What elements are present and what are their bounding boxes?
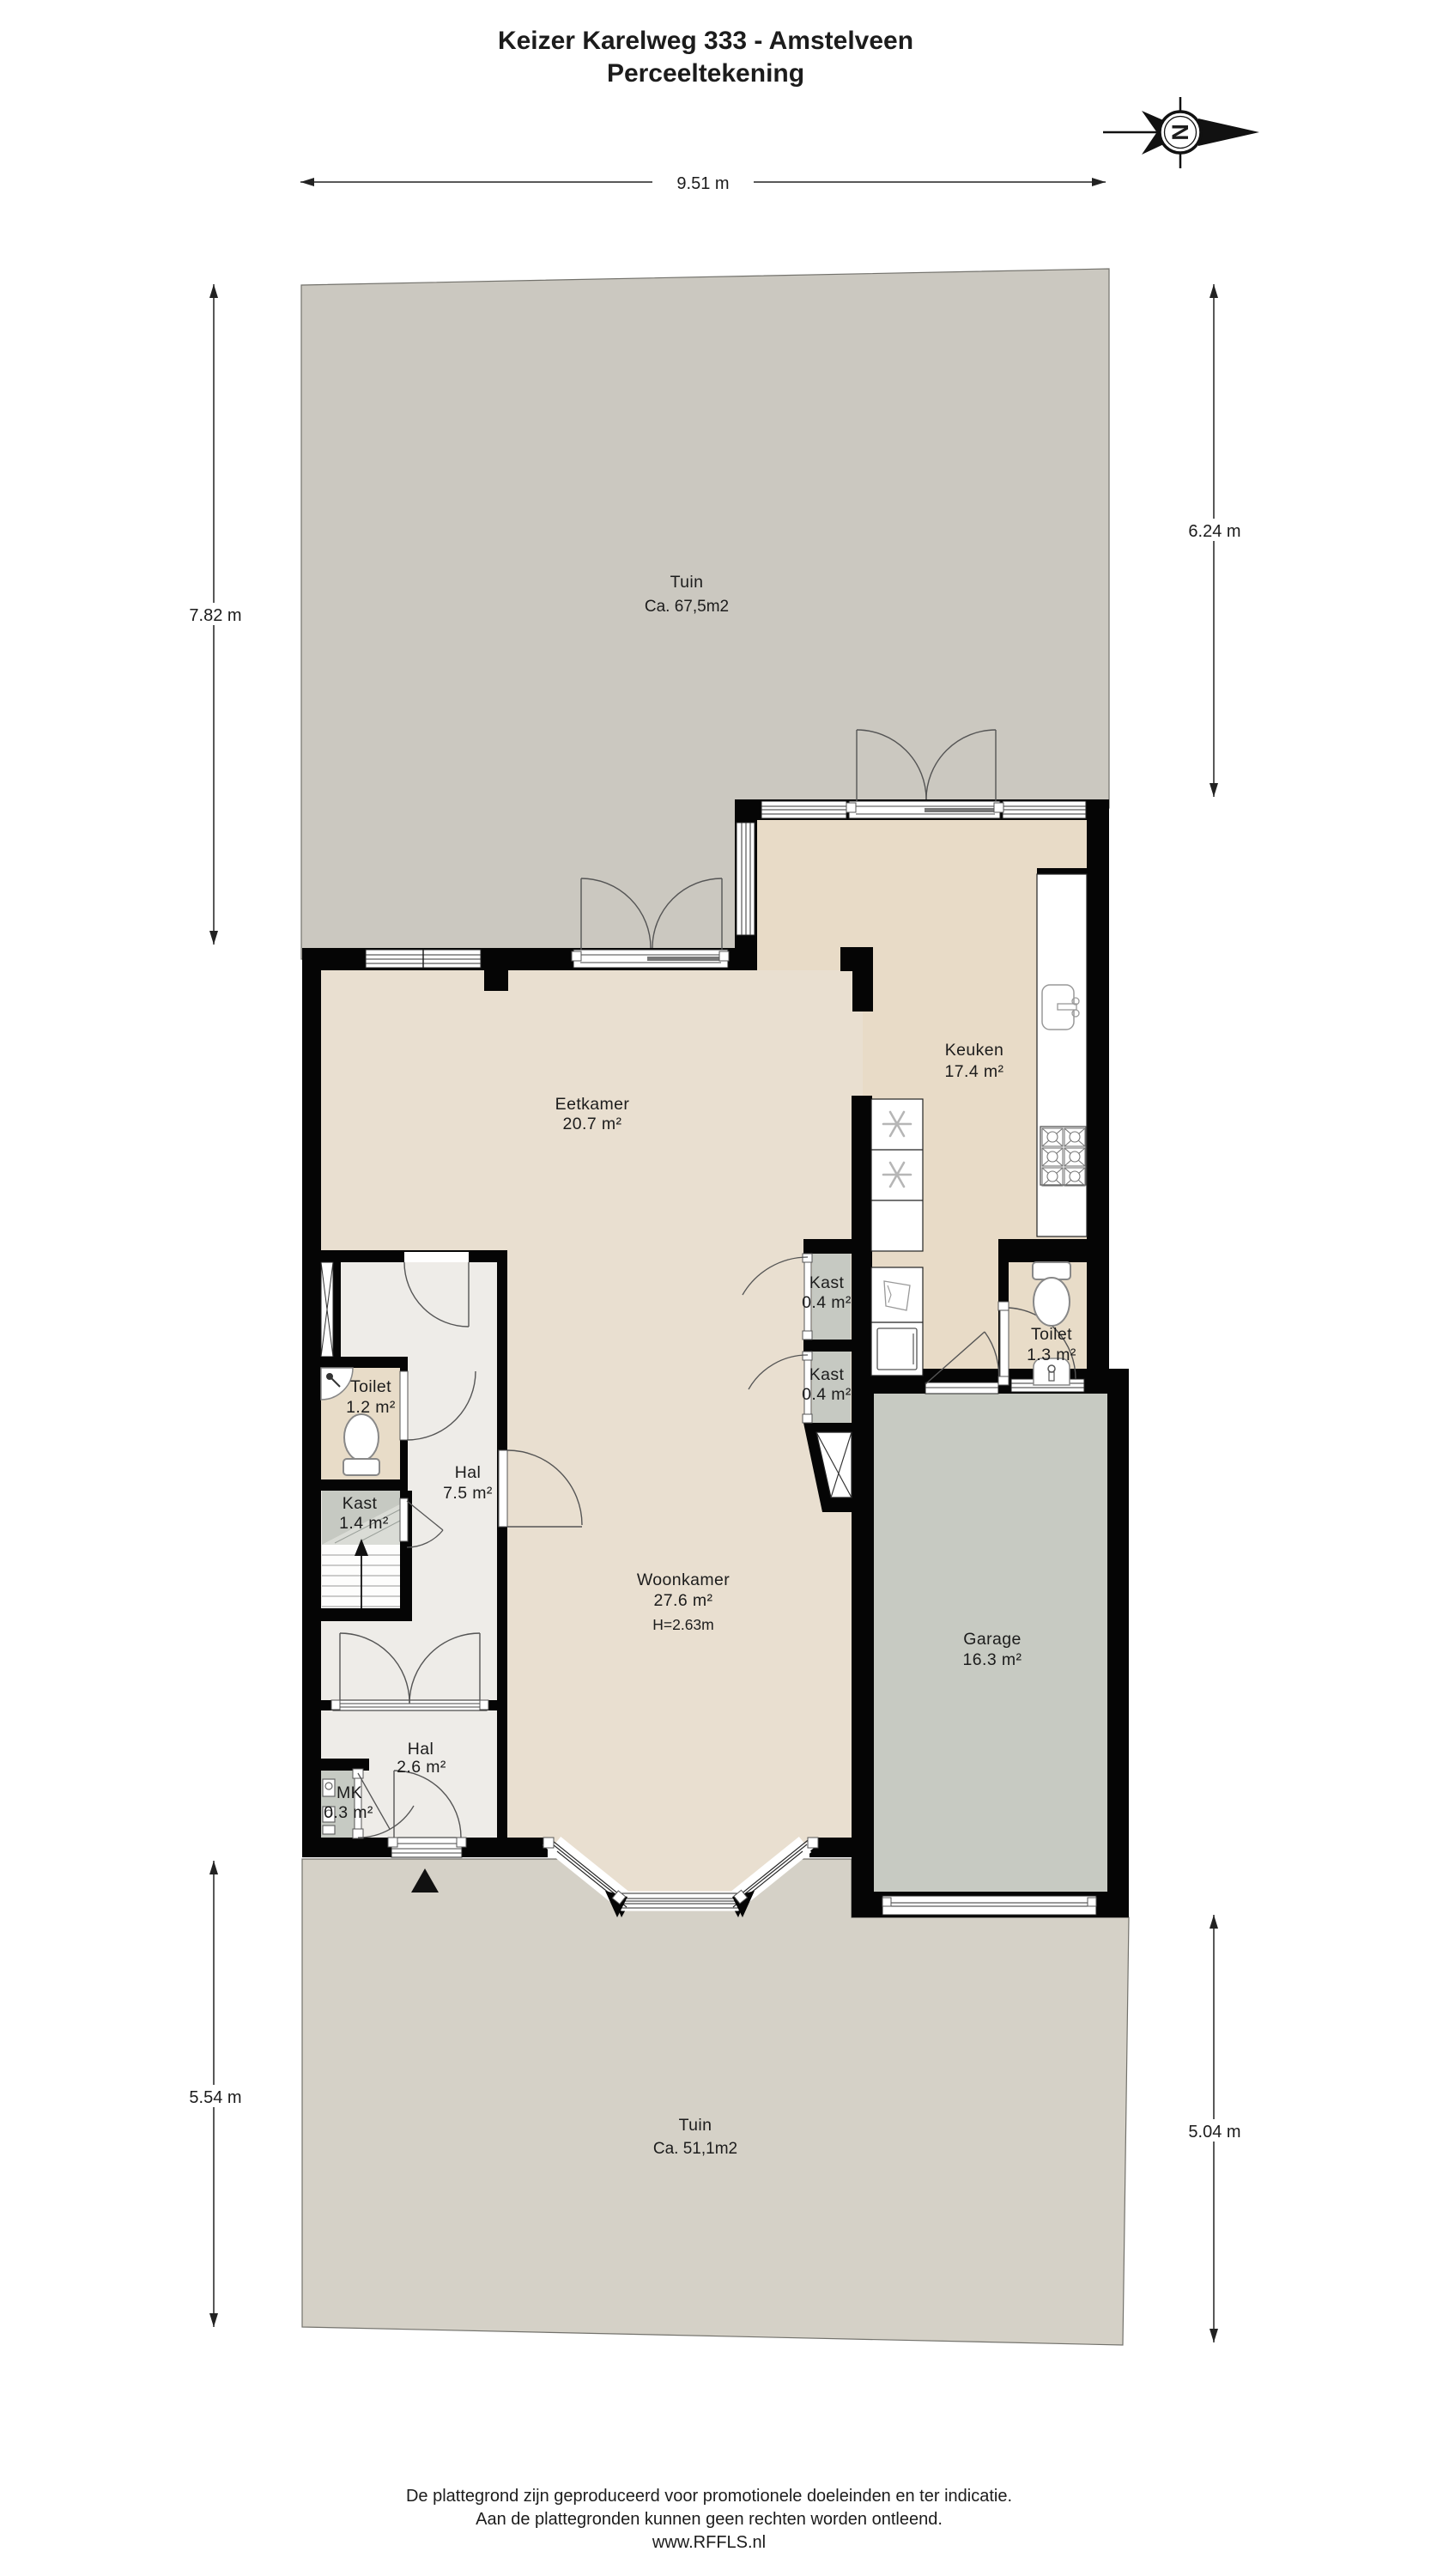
svg-text:Hal: Hal (408, 1740, 433, 1759)
svg-text:0.4 m²: 0.4 m² (802, 1293, 852, 1312)
svg-text:7.82 m: 7.82 m (189, 606, 241, 625)
svg-text:Kast: Kast (343, 1494, 378, 1513)
svg-text:MK: MK (336, 1783, 362, 1802)
svg-text:5.04 m: 5.04 m (1188, 2123, 1240, 2142)
svg-text:Toilet: Toilet (350, 1377, 391, 1396)
svg-text:N: N (1167, 124, 1193, 141)
svg-text:Toilet: Toilet (1031, 1325, 1072, 1344)
svg-text:Kast: Kast (809, 1273, 845, 1292)
svg-text:9.51 m: 9.51 m (676, 174, 729, 193)
svg-text:20.7 m²: 20.7 m² (563, 1115, 622, 1133)
svg-text:Keizer Karelweg 333 - Amstelve: Keizer Karelweg 333 - Amstelveen (498, 27, 913, 55)
svg-text:1.4 m²: 1.4 m² (339, 1514, 389, 1533)
svg-text:1.2 m²: 1.2 m² (346, 1398, 396, 1417)
svg-text:Kast: Kast (809, 1365, 845, 1384)
svg-text:27.6 m²: 27.6 m² (654, 1591, 713, 1610)
svg-text:Keuken: Keuken (945, 1041, 1004, 1060)
svg-text:H=2.63m: H=2.63m (652, 1616, 714, 1633)
svg-text:17.4 m²: 17.4 m² (945, 1062, 1004, 1081)
svg-text:Ca. 51,1m2: Ca. 51,1m2 (653, 2140, 737, 2158)
svg-text:Eetkamer: Eetkamer (555, 1095, 630, 1114)
svg-text:www.RFFLS.nl: www.RFFLS.nl (652, 2533, 766, 2552)
svg-text:Tuin: Tuin (679, 2116, 712, 2135)
svg-text:16.3 m²: 16.3 m² (963, 1650, 1022, 1669)
svg-text:Ca. 67,5m2: Ca. 67,5m2 (645, 598, 729, 616)
svg-text:0.4 m²: 0.4 m² (802, 1385, 852, 1404)
svg-text:0.3 m²: 0.3 m² (324, 1803, 373, 1822)
svg-text:5.54 m: 5.54 m (189, 2088, 241, 2107)
svg-text:6.24 m: 6.24 m (1188, 522, 1240, 541)
svg-text:Hal: Hal (455, 1463, 481, 1482)
svg-text:Perceeltekening: Perceeltekening (607, 59, 804, 88)
svg-text:Aan de plattegronden kunnen ge: Aan de plattegronden kunnen geen rechten… (476, 2510, 943, 2529)
svg-text:Woonkamer: Woonkamer (637, 1571, 730, 1589)
svg-text:Garage: Garage (963, 1630, 1021, 1649)
svg-text:7.5 m²: 7.5 m² (443, 1484, 493, 1503)
svg-text:De plattegrond zijn geproducee: De plattegrond zijn geproduceerd voor pr… (406, 2487, 1012, 2506)
svg-text:Tuin: Tuin (670, 573, 704, 592)
svg-text:1.3 m²: 1.3 m² (1027, 1346, 1076, 1364)
svg-text:2.6 m²: 2.6 m² (397, 1758, 446, 1777)
